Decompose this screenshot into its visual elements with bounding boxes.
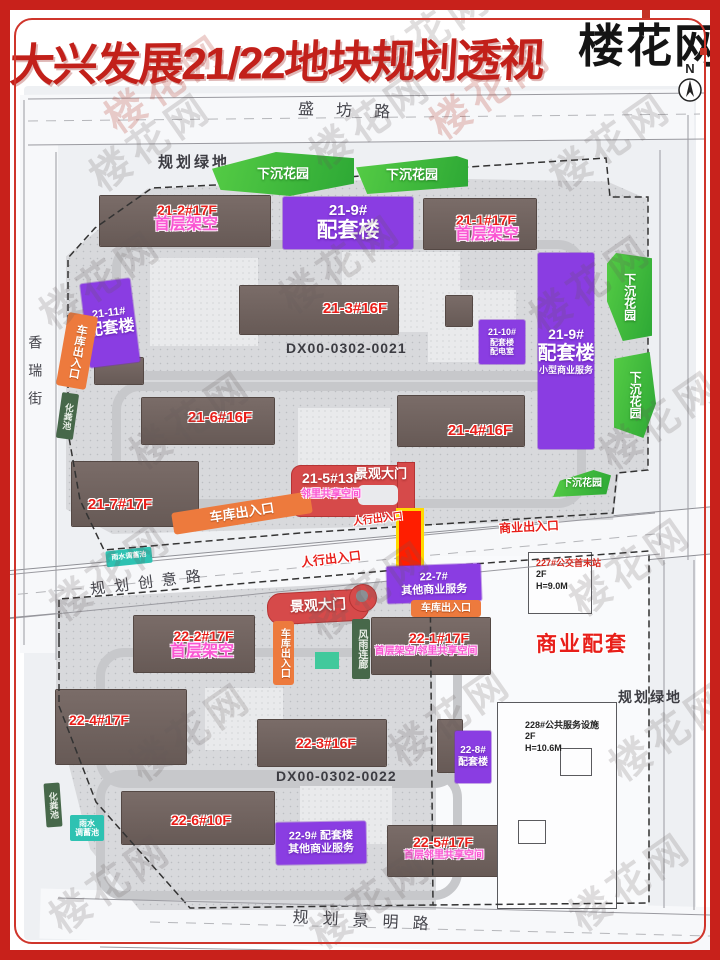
road-jingming: 规划景明路: [280, 908, 456, 936]
parcel-code-21: DX00-0302-0021: [286, 340, 407, 357]
public-service-note: 228#公共服务设施2FH=10.6M: [525, 720, 605, 754]
green-space-right: 规划绿地: [618, 689, 682, 706]
compass-n-label: N: [685, 61, 694, 76]
garden-3: 下沉花园: [607, 253, 652, 341]
box-21-9-top: 21-9#配套楼: [283, 197, 413, 249]
garage-entrance-22-right: 车库出入口: [411, 600, 481, 617]
garden-1: 下沉花园: [212, 152, 354, 196]
poster-title: 大兴发展21/22地块规划透视: [8, 23, 592, 94]
label-21-7: 21-7#17F: [80, 496, 160, 514]
road-xiangrui: 香瑞街: [26, 332, 44, 422]
label-business-zone: 商业配套: [530, 633, 634, 658]
compass-icon: [677, 77, 703, 103]
road-chuangyi: 规划创意路: [89, 567, 210, 599]
entrance-pedestrian-2: 人行出入口: [349, 511, 406, 530]
label-22-6: 22-6#10F: [165, 812, 237, 829]
label-21-6: 21-6#16F: [180, 409, 260, 427]
parcel-code-22: DX00-0302-0022: [276, 768, 397, 785]
box-22-7: 22-7#其他商业服务: [386, 563, 481, 603]
label-21-4: 21-4#16F: [440, 422, 520, 440]
septic-tank-lower: 化粪池: [43, 782, 62, 827]
seal-mark: [700, 48, 707, 55]
gate-label-22: 景观大门: [276, 595, 361, 616]
label-21-3: 21-3#16F: [315, 300, 395, 318]
garden-2: 下沉花园: [356, 156, 468, 194]
garden-5: 下沉花园: [553, 470, 611, 497]
rain-pool-upper: 雨水调蓄池: [105, 547, 152, 568]
labels-layer: 盛坊路香瑞街规划创意路规划景明路规划绿地规划绿地DX00-0302-0021DX…: [0, 0, 720, 960]
rain-pool-lower: 雨水调蓄池: [70, 815, 104, 841]
entrance-business: 商业出入口: [494, 518, 565, 536]
box-22-9: 22-9# 配套楼其他商业服务: [276, 821, 367, 865]
compass: N: [674, 62, 706, 103]
seal-mark: [642, 10, 650, 18]
garage-entrance-mid: 车库出入口: [171, 491, 313, 535]
label-22-4: 22-4#17F: [63, 712, 135, 729]
label-22-1: 22-1#17F: [404, 630, 474, 647]
label-22-5: 22-5#17F: [407, 834, 479, 851]
label-22-1-note: 首层架空/邻里共享空间: [368, 646, 484, 658]
site-plan-poster: 盛坊路香瑞街规划创意路规划景明路规划绿地规划绿地DX00-0302-0021DX…: [0, 0, 720, 960]
label-22-3: 22-3#16F: [290, 735, 362, 752]
septic-tank-upper: 化粪池: [56, 392, 79, 440]
label-22-5-note: 首层邻里共享空间: [393, 850, 495, 862]
box-21-10: 21-10#配套楼配电室: [479, 320, 525, 364]
garden-4: 下沉花园: [614, 352, 656, 438]
label-21-2-note: 首层架空: [146, 216, 226, 235]
box-21-9-right: 21-9#配套楼小型商业服务: [538, 253, 594, 449]
bus-terminal-note: 227#公交首末站2FH=9.0M: [536, 558, 608, 592]
gate-label-21: 景观大门: [353, 466, 409, 481]
label-21-1-note: 首层架空: [448, 226, 526, 245]
road-shengfang: 盛坊路: [285, 101, 426, 125]
garage-entrance-22-vert: 车库出入口: [273, 621, 294, 685]
label-22-2-note: 首层架空: [162, 643, 242, 662]
garage-entrance-left: 车库出入口: [56, 312, 98, 390]
box-22-8: 22-8#配套楼: [455, 731, 491, 783]
label-21-5-note: 邻里共享空间: [294, 489, 368, 501]
entrance-pedestrian-1: 人行出入口: [295, 548, 366, 571]
